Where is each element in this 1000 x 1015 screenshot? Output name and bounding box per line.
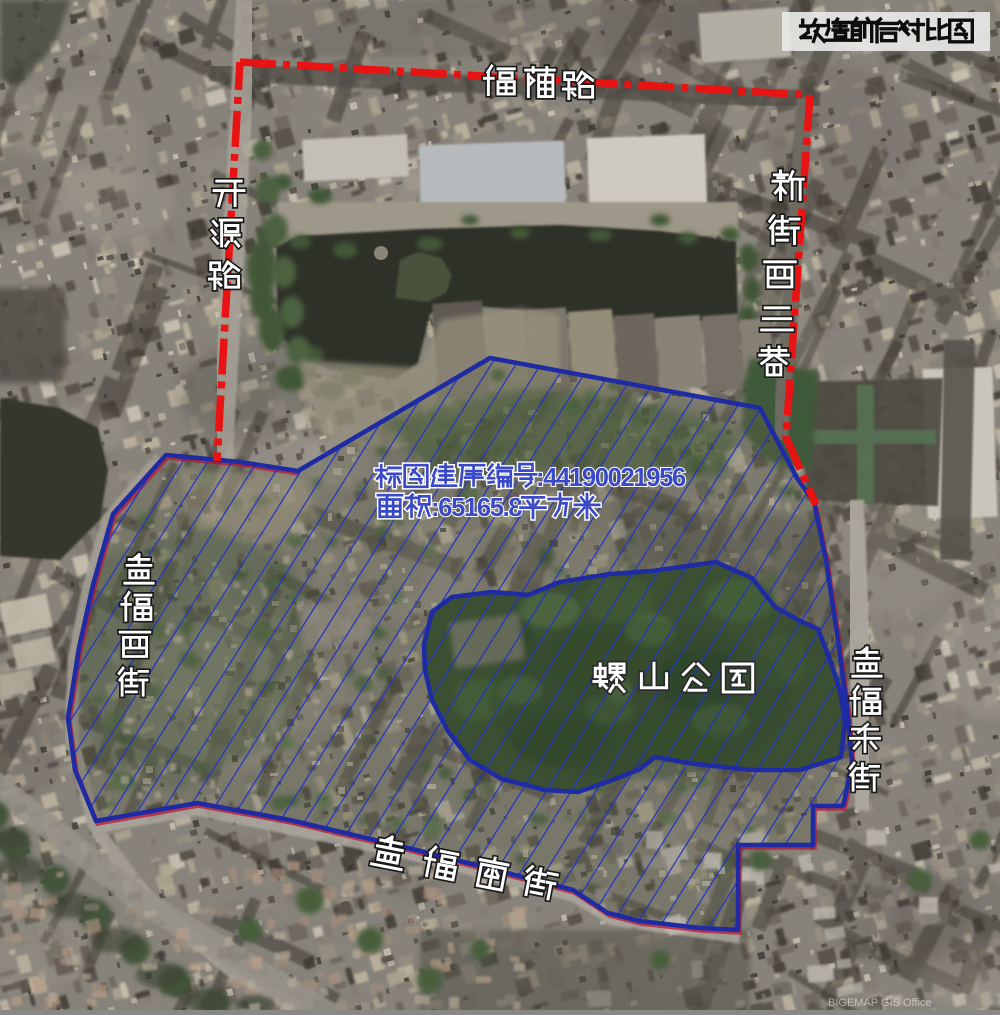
svg-text:BIGEMAP GIS Office: BIGEMAP GIS Office (828, 997, 932, 1009)
svg-text::44190021956: :44190021956 (536, 464, 686, 492)
svg-text::65165.8: :65165.8 (431, 494, 522, 522)
